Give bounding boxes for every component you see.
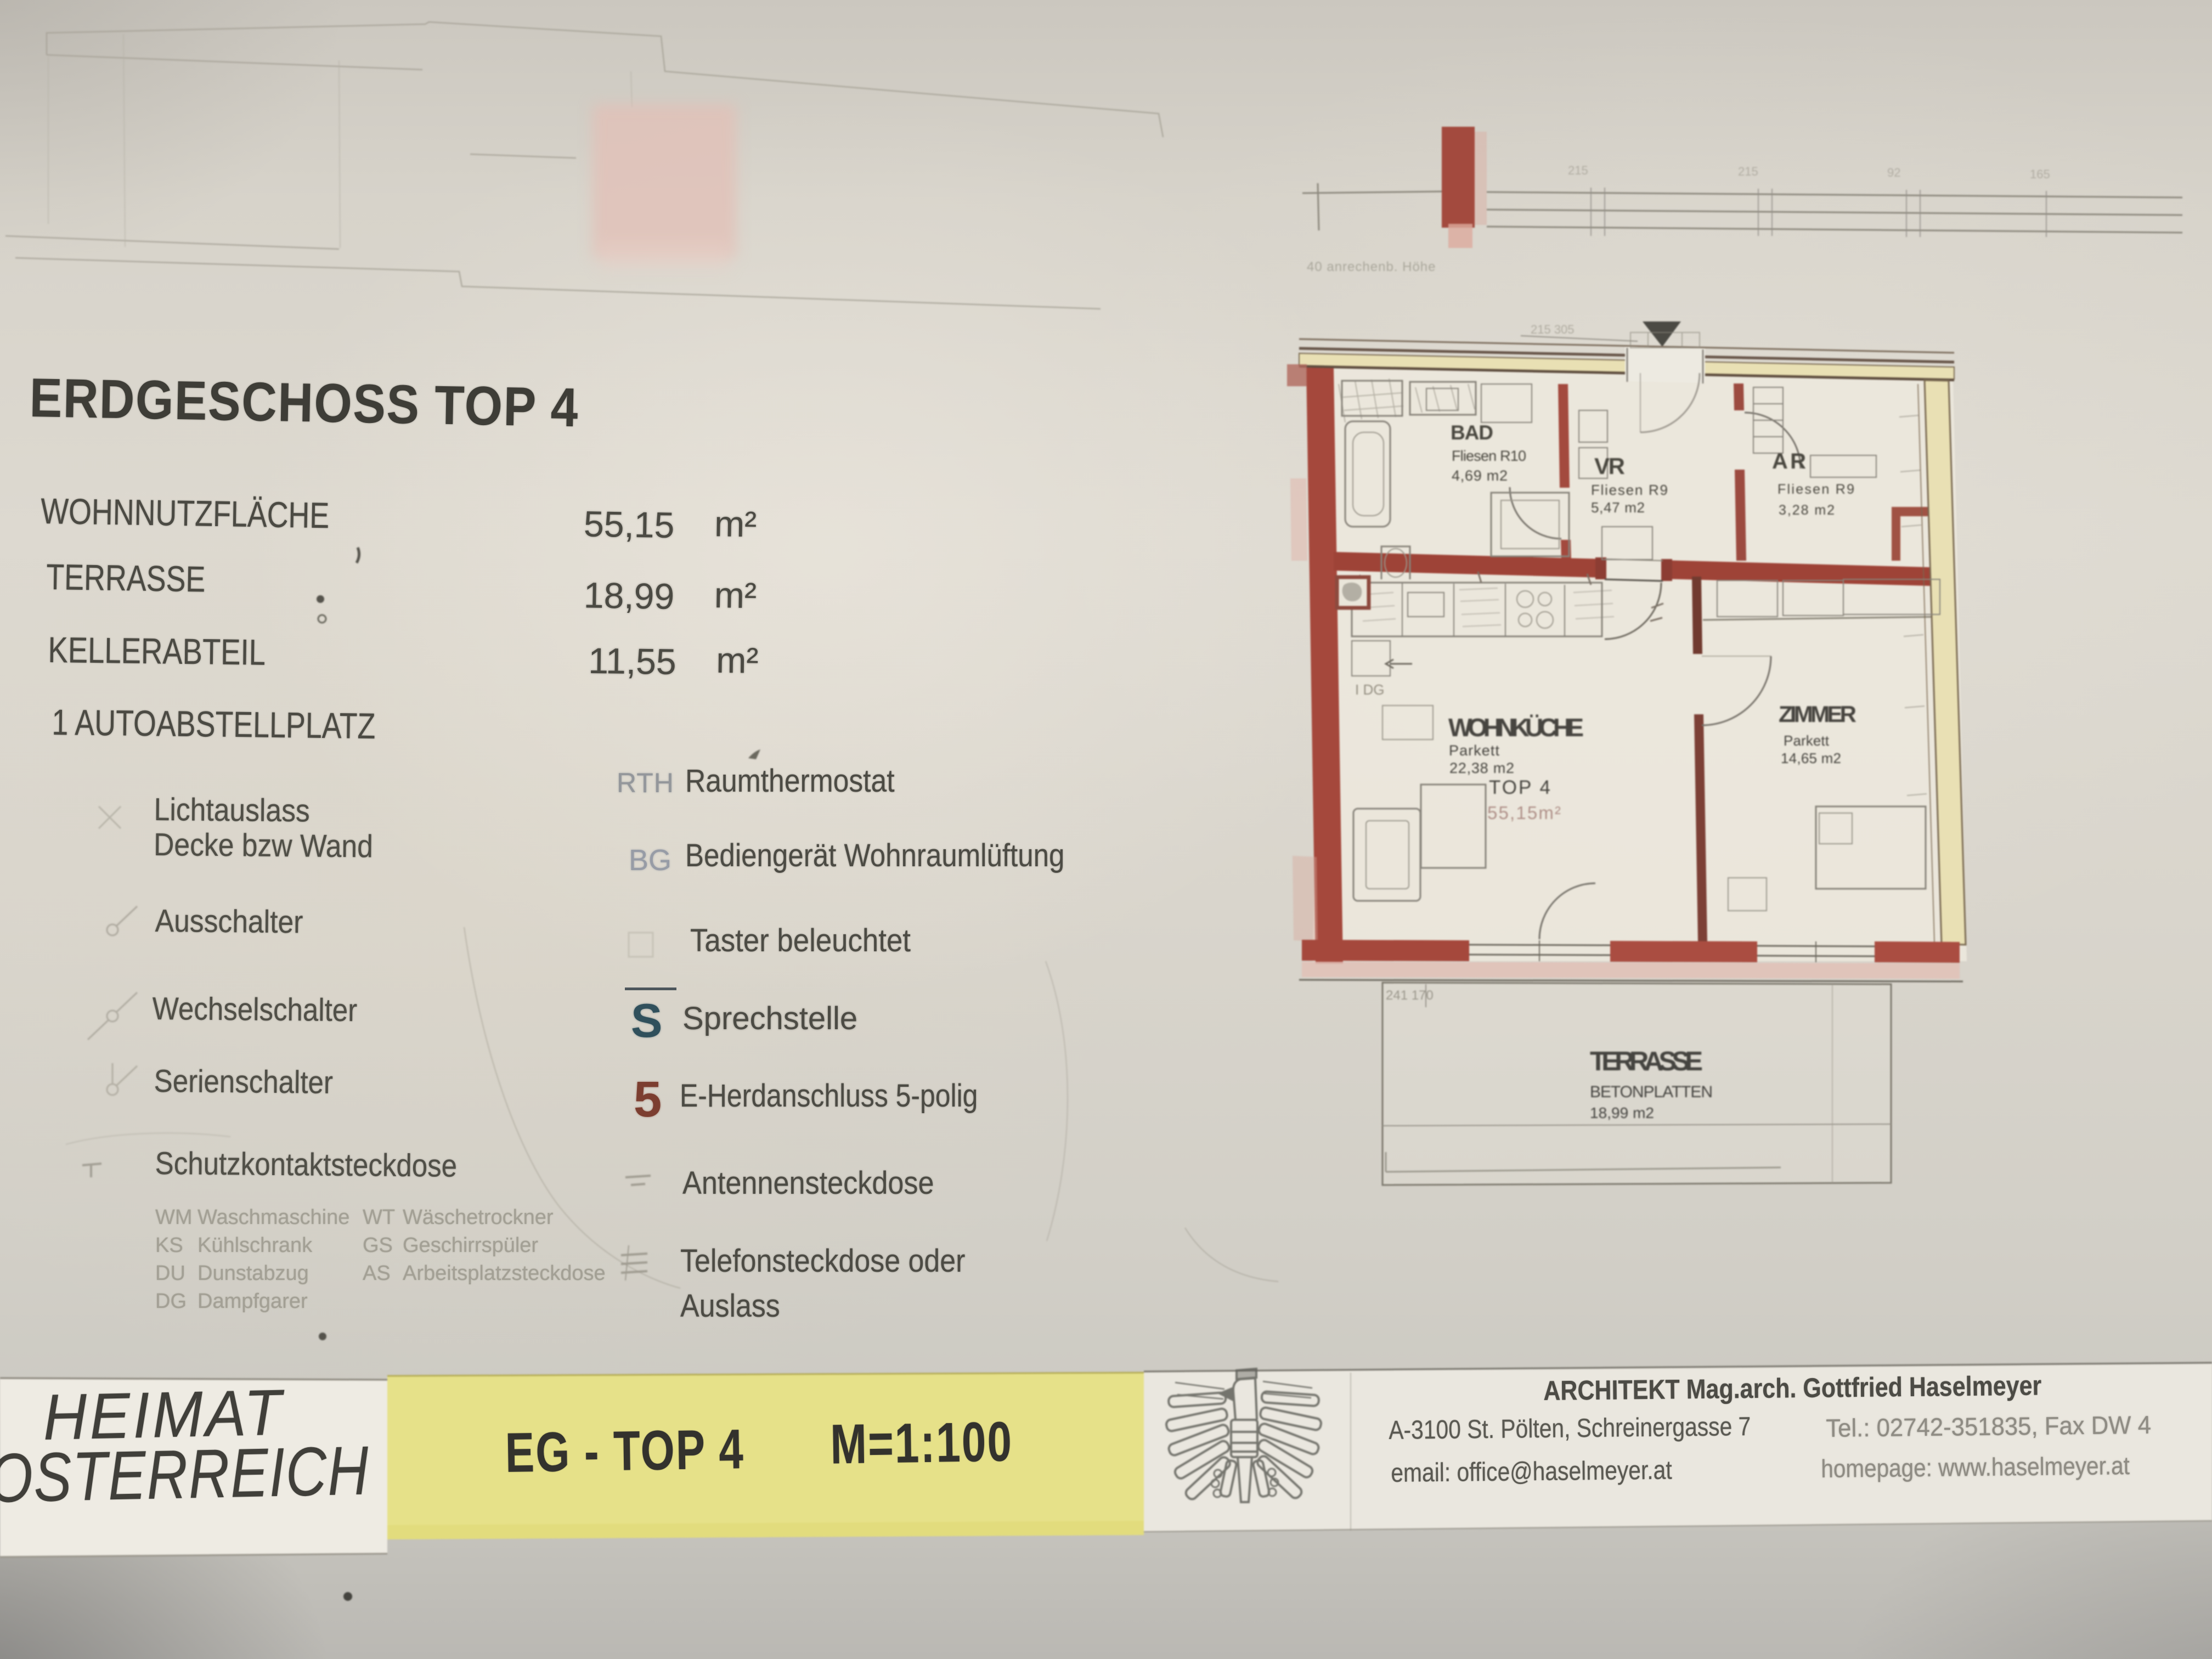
svg-text:40 anrechenb. Höhe: 40 anrechenb. Höhe (1307, 259, 1436, 274)
svg-text:92: 92 (1887, 166, 1900, 179)
svg-text:215: 215 (1738, 165, 1758, 178)
svg-text:18,99 m2: 18,99 m2 (1590, 1104, 1654, 1121)
svg-text:I DG: I DG (1355, 681, 1384, 698)
svg-text:55,15m²: 55,15m² (1487, 803, 1561, 823)
svg-text:22,38 m2: 22,38 m2 (1449, 760, 1514, 776)
svg-text:TOP 4: TOP 4 (1489, 777, 1550, 798)
svg-text:Fliesen R9: Fliesen R9 (1778, 482, 1854, 497)
svg-text:165: 165 (2030, 167, 2050, 181)
svg-text:WOHNKÜCHE: WOHNKÜCHE (1448, 713, 1584, 742)
svg-text:5,47 m2: 5,47 m2 (1591, 499, 1645, 516)
svg-text:4,69 m2: 4,69 m2 (1452, 467, 1508, 484)
svg-text:Fliesen R9: Fliesen R9 (1591, 482, 1668, 498)
svg-text:VR: VR (1594, 453, 1625, 479)
svg-text:Parkett: Parkett (1449, 742, 1499, 759)
svg-text:14,65 m2: 14,65 m2 (1781, 750, 1841, 766)
svg-text:215: 215 (1568, 163, 1588, 177)
svg-text:215 305: 215 305 (1531, 323, 1575, 336)
svg-text:Parkett: Parkett (1784, 732, 1830, 749)
svg-text:Fliesen R10: Fliesen R10 (1452, 448, 1526, 464)
svg-text:BAD: BAD (1451, 421, 1493, 444)
svg-text:TERRASSE: TERRASSE (1590, 1047, 1703, 1076)
svg-text:241 170: 241 170 (1386, 988, 1434, 1003)
svg-text:BETONPLATTEN: BETONPLATTEN (1590, 1083, 1713, 1101)
svg-text:ZIMMER: ZIMMER (1779, 701, 1857, 727)
